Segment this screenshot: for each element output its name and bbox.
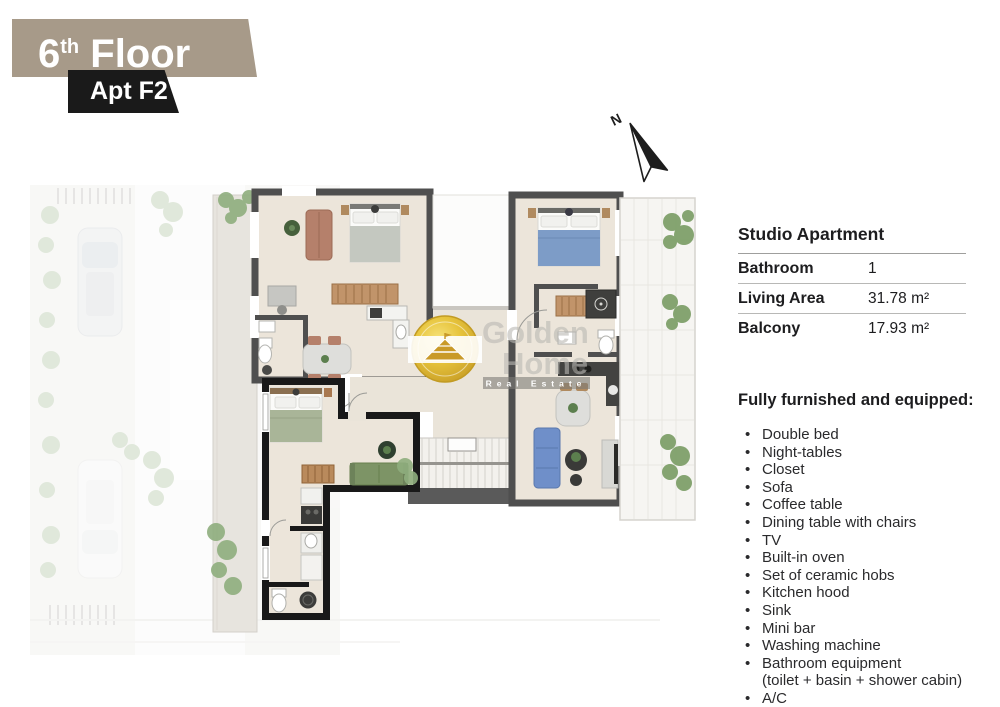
- feature-item: Sink: [738, 602, 988, 620]
- feature-item: Night-tables: [738, 444, 988, 462]
- feature-item: Coffee table: [738, 496, 988, 514]
- lightwell: [433, 195, 509, 308]
- spec-row-bathroom: Bathroom 1: [738, 254, 966, 284]
- features-heading: Fully furnished and equipped:: [738, 391, 988, 410]
- entrance-hallway: [350, 377, 433, 412]
- floor-word: Floor: [79, 32, 190, 76]
- feature-item: Bathroom equipment: [738, 655, 988, 673]
- staircase: [408, 438, 518, 490]
- floor-plan-page: 6th Floor Apt F2 N: [0, 0, 1000, 707]
- balcony-strip: [207, 190, 257, 632]
- spec-label: Bathroom: [738, 260, 868, 278]
- spec-table: Studio Apartment Bathroom 1 Living Area …: [738, 224, 966, 343]
- features-section: Fully furnished and equipped: Double bed…: [738, 391, 988, 707]
- watermark-line2: Home: [502, 346, 588, 381]
- feature-item: TV: [738, 532, 988, 550]
- floor-banner: 6th Floor: [12, 19, 257, 77]
- floor-suffix: th: [60, 36, 79, 58]
- feature-item: Double bed: [738, 426, 988, 444]
- feature-item: Kitchen hood: [738, 584, 988, 602]
- floor-plan: Golden Home Real Estate: [20, 100, 710, 665]
- feature-item: Sofa: [738, 479, 988, 497]
- car-top: [78, 228, 122, 336]
- feature-item: Set of ceramic hobs: [738, 567, 988, 585]
- feature-item: Dining table with chairs: [738, 514, 988, 532]
- spec-value: 1: [868, 260, 877, 278]
- feature-item: Mini bar: [738, 620, 988, 638]
- spec-row-living-area: Living Area 31.78 m²: [738, 284, 966, 314]
- spec-row-balcony: Balcony 17.93 m²: [738, 314, 966, 343]
- feature-item: Built-in oven: [738, 549, 988, 567]
- spec-table-title: Studio Apartment: [738, 224, 966, 254]
- spec-label: Living Area: [738, 290, 868, 308]
- spec-value: 31.78 m²: [868, 290, 929, 308]
- floor-number: 6: [38, 32, 60, 76]
- car-bottom: [78, 460, 122, 578]
- feature-item: Washing machine: [738, 637, 988, 655]
- watermark-line1: Golden: [482, 315, 589, 350]
- spec-label: Balcony: [738, 320, 868, 338]
- left-unit: [250, 186, 430, 410]
- apartment-f2: [261, 378, 420, 620]
- feature-item: Closet: [738, 461, 988, 479]
- features-list: Double bed Night-tables Closet Sofa Coff…: [738, 426, 988, 707]
- spec-value: 17.93 m²: [868, 320, 929, 338]
- feature-item: A/C: [738, 690, 988, 707]
- watermark-line3: Real Estate: [486, 379, 587, 389]
- feature-item-continuation: (toilet + basin + shower cabin): [738, 672, 988, 690]
- terrace: [620, 198, 695, 520]
